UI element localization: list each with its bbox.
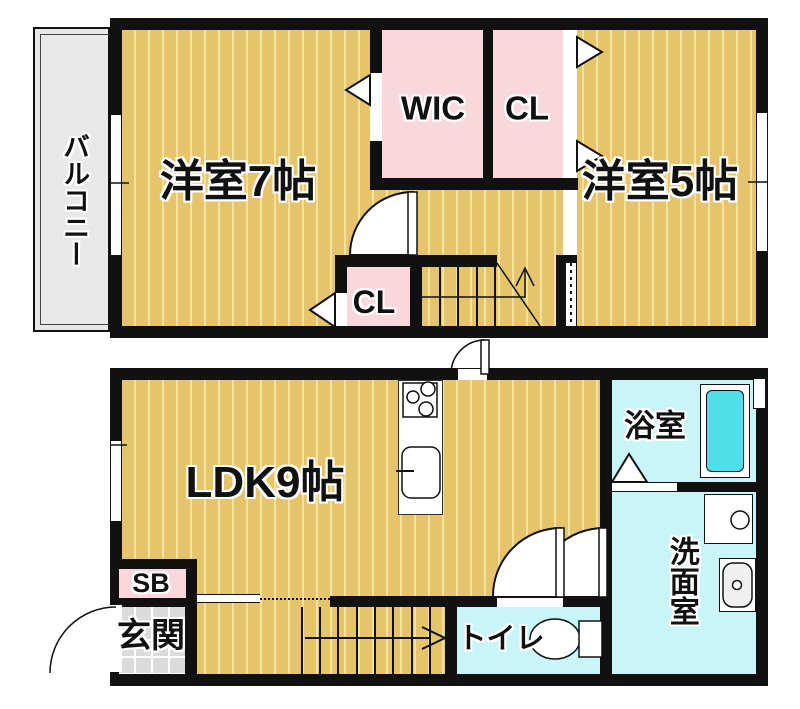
lower-wall-top — [110, 368, 768, 380]
vanity-unit — [719, 558, 756, 612]
cl2-label: CL — [353, 286, 396, 320]
stairs-ceiling-dashed-line — [260, 598, 330, 603]
entrance-door-swing — [50, 607, 116, 673]
room5-label: 洋室5帖 — [582, 159, 738, 205]
room5-window — [756, 112, 768, 252]
cl-label: CL — [505, 92, 549, 127]
wall-ldk-washroom-bottom — [563, 596, 612, 607]
wic-label: WIC — [401, 92, 465, 127]
lower-wall-right — [756, 368, 768, 686]
stairs-door-opening — [458, 369, 487, 380]
bathtub — [706, 390, 744, 472]
wall-closet-bottom — [370, 178, 578, 190]
wall-ldk-stairs — [330, 596, 497, 607]
upper-wall-top — [110, 18, 768, 30]
stair-rail-dots — [570, 263, 572, 326]
wall-bath-washroom — [677, 482, 756, 492]
entrance-step-edge — [197, 594, 260, 603]
washer-pan — [704, 494, 753, 544]
room7-label: 洋室7帖 — [160, 159, 316, 205]
sb-label: SB — [132, 569, 170, 597]
wall-entrance-right — [185, 559, 197, 674]
toilet-door-opening — [497, 596, 563, 607]
bath-label: 浴室 — [624, 411, 686, 444]
ldk-label: LDK9帖 — [186, 460, 345, 506]
cl-folding-door — [563, 30, 577, 178]
washroom-label: 洗面室 — [665, 536, 697, 626]
wall-ldk-wet — [600, 368, 612, 674]
wall-wic-cl — [483, 18, 493, 190]
entrance-label: 玄関 — [117, 619, 185, 655]
floor-plan: バルコニー 洋室7帖 WIC CL 洋室5帖 CL LDK9帖 SB 玄関 トイ… — [0, 0, 800, 709]
room7-window — [110, 114, 122, 256]
bathroom-window — [753, 378, 766, 409]
wall-cl2-right — [410, 255, 422, 326]
cl2-door-opening — [335, 293, 347, 326]
kitchen-counter — [398, 380, 443, 515]
lower-wall-bottom — [110, 674, 768, 686]
wall-stairs-toilet — [445, 596, 457, 674]
room5-door-opening — [563, 190, 577, 255]
balcony-label: バルコニー — [60, 133, 88, 268]
upper-wall-bottom — [110, 326, 768, 338]
toilet-label: トイレ — [457, 624, 544, 654]
ldk-window — [110, 440, 122, 522]
bath-door-threshold — [612, 482, 677, 492]
wic-door-opening — [370, 73, 382, 141]
